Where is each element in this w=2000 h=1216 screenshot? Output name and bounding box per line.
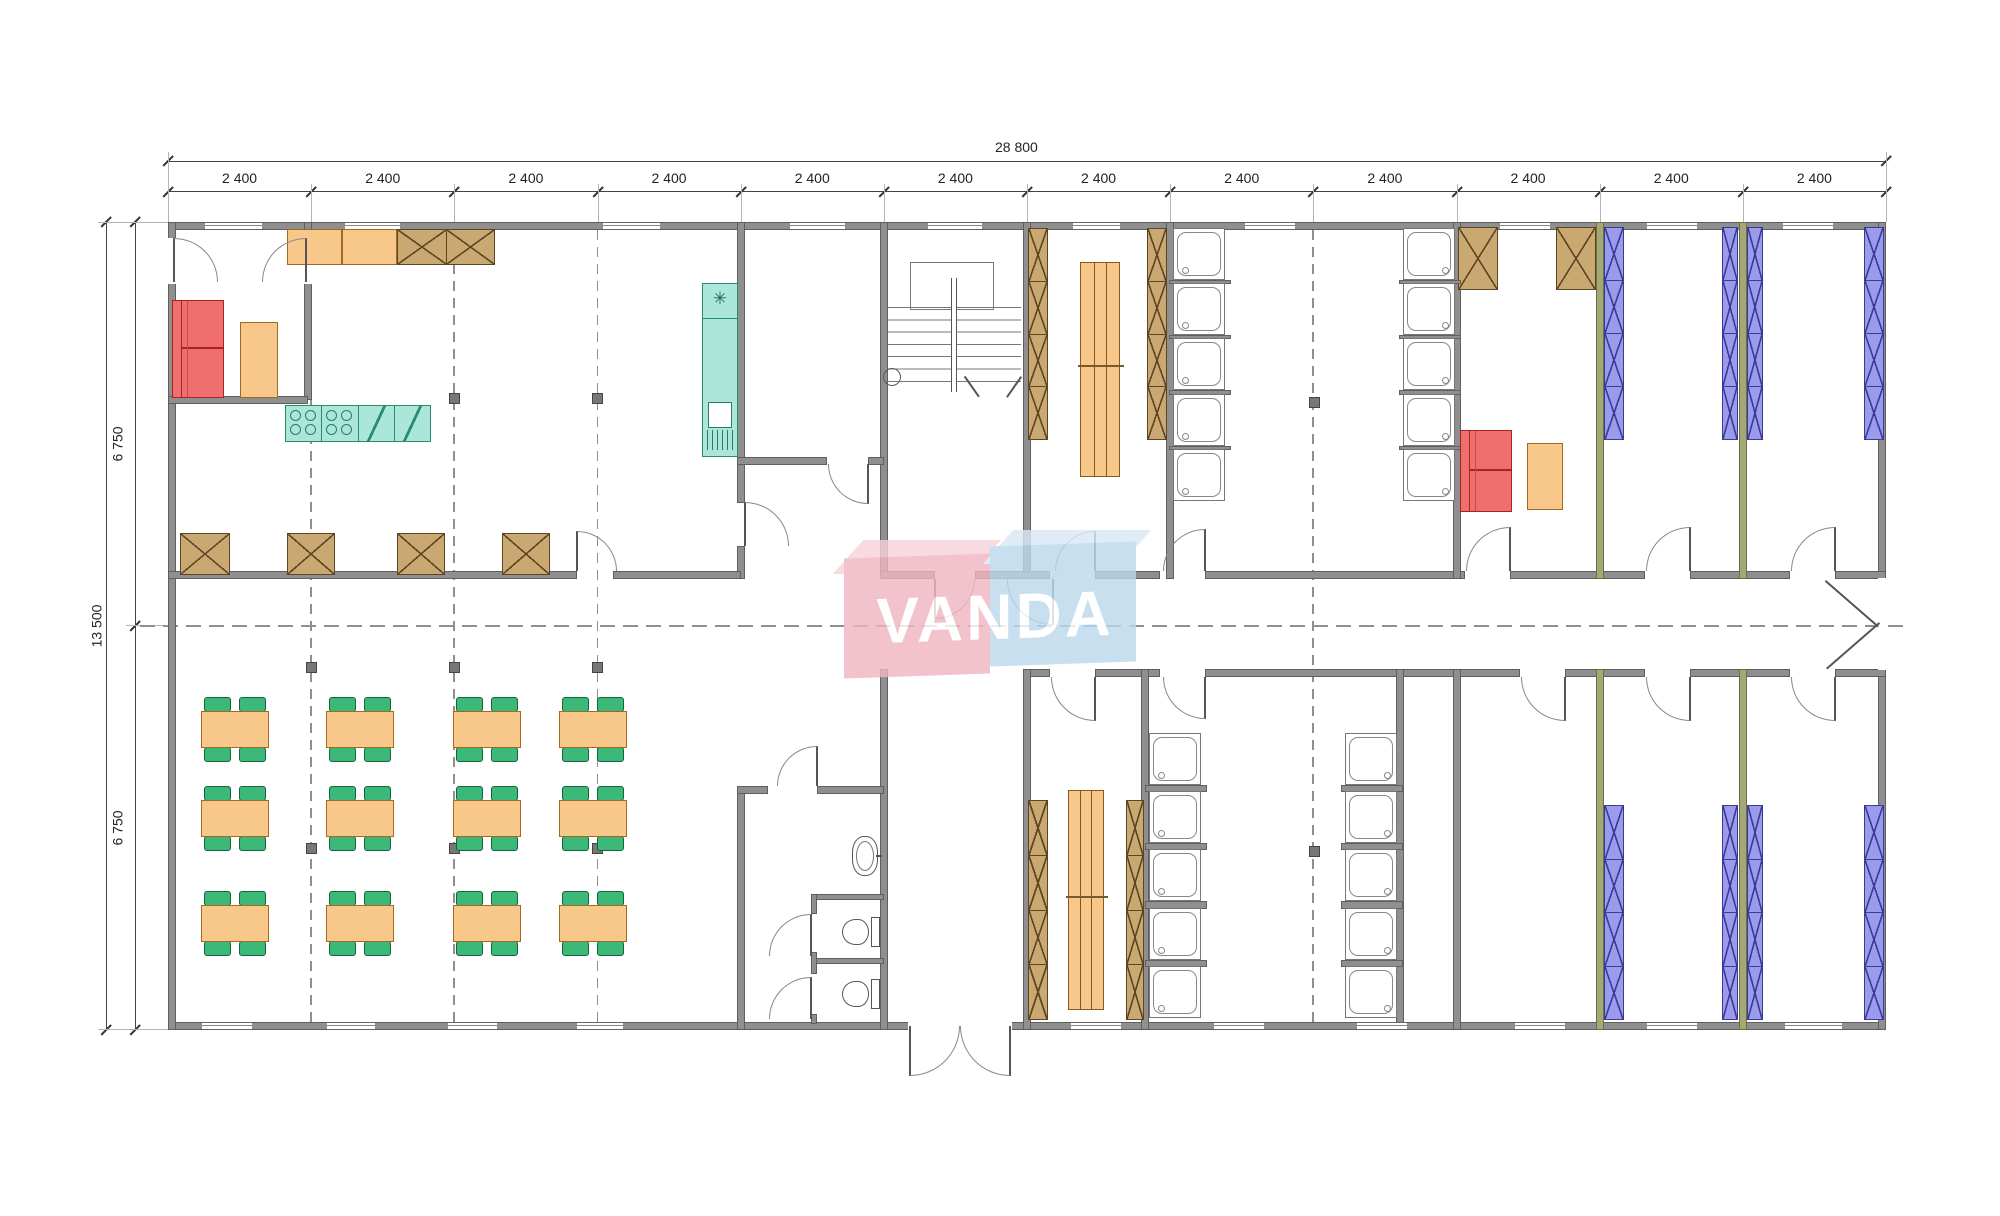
dim-extension-line [1600, 184, 1601, 222]
window [1785, 1022, 1842, 1030]
chair [364, 697, 391, 712]
shower-drain [1158, 1005, 1165, 1012]
stair-stringer [951, 278, 957, 392]
washbasin-tap [876, 855, 882, 857]
dining-table [326, 800, 394, 837]
bunk-bed-section [1723, 806, 1737, 859]
chair [562, 786, 589, 801]
door-swing-arc [828, 464, 868, 504]
dining-table [326, 711, 394, 748]
locker-column-section [1029, 855, 1047, 910]
kitchen-x-cabinet-section [398, 230, 446, 264]
bunk-bed-section [1865, 912, 1883, 966]
bunk-bed-column [1604, 227, 1624, 440]
dimension-bay-label: 2 400 [1600, 170, 1743, 186]
shower-stall [1403, 228, 1455, 280]
wall [811, 952, 817, 974]
chair [597, 891, 624, 906]
dim-extension-line [98, 1029, 168, 1030]
locker-column-section [1148, 334, 1166, 387]
shower-drain [1384, 1005, 1391, 1012]
kitchen-island [285, 405, 431, 442]
dining-table [453, 905, 521, 942]
corridor-exit-door-leaf [1826, 622, 1880, 669]
column-marker [592, 662, 603, 673]
dimension-bay-label: 2 400 [168, 170, 311, 186]
door-swing-arc [769, 914, 811, 956]
shower-drain [1182, 433, 1189, 440]
chair [239, 891, 266, 906]
wall [1739, 222, 1747, 579]
locker-cabinet [1458, 227, 1498, 290]
wall [811, 894, 817, 914]
chair [456, 747, 483, 762]
chair [491, 747, 518, 762]
cooktop-burner [341, 410, 352, 421]
bench-plank-line [1094, 263, 1095, 476]
chair [456, 941, 483, 956]
floor-plan-canvas: 28 800 13 500 6 750 6 750 VANDA 2 4002 4… [0, 0, 2000, 1216]
chair [239, 836, 266, 851]
locker-column-section [1029, 334, 1047, 387]
dim-extension-line [1886, 152, 1887, 222]
chair [204, 786, 231, 801]
locker-column-section [1029, 281, 1047, 334]
window [577, 1022, 623, 1030]
shower-stall [1173, 338, 1225, 390]
window [1245, 222, 1295, 230]
wall [880, 669, 888, 1030]
chair [329, 697, 356, 712]
dimension-overall-height: 13 500 [88, 605, 104, 648]
bench-plank-line [1106, 263, 1107, 476]
shower-drain [1442, 488, 1449, 495]
chair [239, 786, 266, 801]
bunk-bed-section [1605, 912, 1623, 966]
chair [456, 891, 483, 906]
door-swing-arc [769, 977, 811, 1019]
sink-basin [708, 402, 732, 428]
bunk-bed-section [1723, 280, 1737, 333]
door-swing-arc [1646, 527, 1690, 571]
chair [491, 697, 518, 712]
chair [364, 836, 391, 851]
kitchen-wall-cabinet-divider [341, 229, 343, 265]
wall [1565, 669, 1645, 677]
column-marker [306, 843, 317, 854]
dim-extension-line [1313, 184, 1314, 222]
chair [329, 891, 356, 906]
bunk-bed-section [1748, 280, 1762, 333]
wall [1205, 669, 1520, 677]
bunk-bed-section [1865, 333, 1883, 386]
chair [562, 941, 589, 956]
toilet [842, 915, 880, 949]
kitchen-island-cooktop [321, 406, 357, 441]
locker-cabinet-section [1557, 228, 1595, 289]
chair [364, 941, 391, 956]
shower-stall [1403, 449, 1455, 501]
dim-extension-line [98, 222, 168, 223]
chair [204, 747, 231, 762]
sofa-inner-line [187, 301, 188, 397]
bunk-bed-section [1865, 859, 1883, 913]
column-marker [449, 393, 460, 404]
bunk-bed-column [1864, 227, 1884, 440]
wardrobe-x [503, 534, 549, 574]
dining-table [201, 905, 269, 942]
chair [491, 836, 518, 851]
wall [1596, 669, 1604, 1030]
shower-drain [1182, 267, 1189, 274]
kitchen-tall-unit: ✳ [702, 283, 738, 457]
bunk-bed-section [1748, 966, 1762, 1020]
dim-extension-line [1170, 184, 1171, 222]
bunk-bed-section [1723, 228, 1737, 280]
shower-stall [1149, 733, 1201, 785]
bunk-bed-section [1748, 806, 1762, 859]
dimension-bay-label: 2 400 [1027, 170, 1170, 186]
bench-crossbar [1066, 896, 1108, 898]
bunk-bed-column [1604, 805, 1624, 1020]
toilet-tank [871, 979, 880, 1009]
locker-column-section [1127, 801, 1143, 855]
dining-table [559, 905, 627, 942]
chair [364, 747, 391, 762]
chair [456, 697, 483, 712]
sink-diagonal [359, 406, 394, 441]
shower-stall [1149, 966, 1201, 1018]
sofa [1460, 430, 1512, 512]
bench [1080, 262, 1120, 477]
shower-stall [1149, 908, 1201, 960]
dim-extension-line [598, 184, 599, 222]
bunk-bed-section [1748, 859, 1762, 913]
window [603, 222, 660, 230]
sofa [172, 300, 224, 398]
dim-line-overall-width [168, 161, 1886, 162]
door-swing-arc [1646, 677, 1690, 721]
dim-extension-line [454, 184, 455, 222]
locker-cabinet [1556, 227, 1596, 290]
dimension-overall-width: 28 800 [995, 139, 1038, 155]
bunk-bed-section [1605, 966, 1623, 1020]
dining-table [326, 905, 394, 942]
window [1647, 222, 1697, 230]
chair [329, 786, 356, 801]
shower-stall [1149, 791, 1201, 843]
chair [364, 786, 391, 801]
cooktop-burner [341, 424, 352, 435]
bunk-bed-section [1723, 966, 1737, 1020]
bunk-bed-section [1605, 386, 1623, 439]
window [1500, 222, 1550, 230]
locker-column-section [1148, 229, 1166, 281]
dimension-bay-label: 2 400 [311, 170, 454, 186]
sofa-backrest [1461, 431, 1470, 511]
shower-stall [1173, 283, 1225, 335]
wardrobe-cabinet [180, 533, 230, 575]
wardrobe-cabinet [502, 533, 550, 575]
locker-column-section [1127, 964, 1143, 1019]
dim-extension-line [168, 152, 169, 222]
dimension-bay-label: 2 400 [884, 170, 1027, 186]
kitchen-island-sink [394, 406, 430, 441]
column-marker [1309, 397, 1320, 408]
kitchen-x-cabinet-section [446, 230, 495, 264]
bunk-bed-column [1722, 805, 1738, 1020]
wall [1205, 571, 1465, 579]
shower-stall [1345, 791, 1397, 843]
wall [1453, 669, 1461, 1030]
door-swing-arc [1466, 527, 1510, 571]
shower-stall [1345, 966, 1397, 1018]
fridge-section: ✳ [703, 284, 737, 319]
wall [811, 958, 884, 964]
window [1073, 222, 1120, 230]
locker-column-section [1029, 386, 1047, 439]
dimension-left-lower: 6 750 [110, 810, 126, 845]
chair [597, 786, 624, 801]
shower-stall [1345, 733, 1397, 785]
dimension-bay-label: 2 400 [1743, 170, 1886, 186]
cooktop-burner [305, 410, 316, 421]
chair [597, 836, 624, 851]
bunk-bed-section [1723, 859, 1737, 913]
shower-stall [1149, 849, 1201, 901]
shower-drain [1442, 433, 1449, 440]
chair [329, 836, 356, 851]
bunk-bed-section [1865, 966, 1883, 1020]
stair-start-circle [883, 368, 901, 386]
window [205, 222, 262, 230]
toilet-bowl [842, 919, 869, 945]
wall [868, 457, 884, 465]
sofa-cushion-divider [182, 347, 223, 349]
dining-table [559, 711, 627, 748]
kitchen-x-cabinet [397, 229, 495, 265]
window [327, 1022, 375, 1030]
door-swing-arc [960, 1026, 1010, 1076]
chair [204, 836, 231, 851]
wardrobe-x [288, 534, 334, 574]
wardrobe-x [181, 534, 229, 574]
cooktop-burner [326, 424, 337, 435]
cooktop-burner [305, 424, 316, 435]
door-swing-arc [1163, 677, 1205, 719]
door-swing-arc [777, 746, 817, 786]
wall [1835, 669, 1886, 677]
window [1783, 222, 1833, 230]
shower-stall [1345, 908, 1397, 960]
shower-drain [1442, 267, 1449, 274]
cooktop-burner [326, 410, 337, 421]
dimension-bay-label: 2 400 [1457, 170, 1600, 186]
dim-extension-line [884, 184, 885, 222]
sofa-cushion-divider [1470, 469, 1511, 471]
dimension-bay-label: 2 400 [1170, 170, 1313, 186]
washbasin [852, 836, 881, 878]
sofa-backrest [173, 301, 182, 397]
wall [811, 894, 884, 900]
washbasin-inner [856, 841, 874, 871]
chair [204, 697, 231, 712]
bench-crossbar [1078, 365, 1124, 367]
locker-column-section [1148, 386, 1166, 439]
dim-extension-line [1457, 184, 1458, 222]
chair [329, 747, 356, 762]
wall [737, 786, 745, 1030]
chair [491, 786, 518, 801]
chair [562, 836, 589, 851]
wardrobe-cabinet [287, 533, 335, 575]
dimension-left-upper: 6 750 [110, 426, 126, 461]
dimension-bay-label: 2 400 [598, 170, 741, 186]
shower-drain [1384, 772, 1391, 779]
dim-extension-line [741, 184, 742, 222]
shower-stall [1173, 394, 1225, 446]
bunk-bed-column [1864, 805, 1884, 1020]
dimension-bay-label: 2 400 [1313, 170, 1456, 186]
column-marker [1309, 846, 1320, 857]
bunk-bed-section [1605, 333, 1623, 386]
locker-column-section [1029, 964, 1047, 1019]
window [790, 222, 845, 230]
wardrobe-x [398, 534, 444, 574]
chair [562, 747, 589, 762]
column-marker [306, 662, 317, 673]
window [1515, 1022, 1565, 1030]
door-swing-arc [1521, 677, 1565, 721]
door-swing-arc [1791, 677, 1835, 721]
chair [562, 697, 589, 712]
locker-column [1028, 228, 1048, 440]
bench [1068, 790, 1104, 1010]
shower-stall [1173, 449, 1225, 501]
bunk-bed-section [1723, 912, 1737, 966]
wall [1739, 669, 1747, 1030]
dining-table [201, 800, 269, 837]
locker-cabinet-section [1459, 228, 1497, 289]
shower-stall [1403, 338, 1455, 390]
bunk-bed-section [1605, 280, 1623, 333]
bunk-bed-section [1723, 333, 1737, 386]
wall [613, 571, 741, 579]
chair [491, 941, 518, 956]
dim-extension-line [1743, 184, 1744, 222]
bunk-bed-section [1723, 386, 1737, 439]
locker-column-section [1029, 801, 1047, 855]
bunk-bed-section [1748, 333, 1762, 386]
side-table [240, 322, 278, 398]
watermark: VANDA [830, 528, 1150, 688]
window [1214, 1022, 1264, 1030]
sink-diagonal [395, 406, 430, 441]
chair [239, 747, 266, 762]
chair [456, 836, 483, 851]
dim-extension-line [1027, 184, 1028, 222]
wall [1596, 222, 1604, 579]
kitchen-island-cooktop [286, 406, 321, 441]
bunk-bed-section [1748, 386, 1762, 439]
toilet-tank [871, 917, 880, 947]
shower-stall [1173, 228, 1225, 280]
bunk-bed-section [1605, 806, 1623, 859]
dimension-bay-label: 2 400 [454, 170, 597, 186]
bench-plank-line [1080, 791, 1081, 1009]
chair [597, 697, 624, 712]
bunk-bed-section [1865, 280, 1883, 333]
window [1357, 1022, 1407, 1030]
wall [737, 457, 827, 465]
wardrobe-cabinet [397, 533, 445, 575]
shower-drain [1384, 947, 1391, 954]
cooktop-burner [290, 424, 301, 435]
chair [364, 891, 391, 906]
dimension-bay-label: 2 400 [741, 170, 884, 186]
dining-table [453, 711, 521, 748]
side-table [1527, 443, 1563, 510]
door-swing-arc [745, 502, 789, 546]
dim-line-overall-height [106, 222, 107, 1030]
locker-column-section [1127, 910, 1143, 965]
wall [817, 786, 884, 794]
chair [239, 697, 266, 712]
bunk-bed-section [1865, 386, 1883, 439]
window [1071, 1022, 1121, 1030]
corridor-exit-door-leaf [1825, 580, 1879, 627]
bunk-bed-column [1747, 227, 1763, 440]
shower-stall [1403, 283, 1455, 335]
cooktop-burner [290, 410, 301, 421]
chair [204, 891, 231, 906]
chair [456, 786, 483, 801]
window [928, 222, 982, 230]
locker-column-section [1127, 855, 1143, 910]
locker-column-section [1148, 281, 1166, 334]
door-swing-arc [577, 531, 617, 571]
door-opening [1878, 578, 1886, 670]
bunk-bed-section [1605, 228, 1623, 280]
locker-column-section [1029, 229, 1047, 281]
bunk-bed-section [1865, 806, 1883, 859]
door-swing-arc [262, 238, 306, 282]
door-swing-arc [910, 1026, 960, 1076]
shower-stall [1403, 394, 1455, 446]
bench-plank-line [1091, 791, 1092, 1009]
bunk-bed-section [1605, 859, 1623, 913]
window [202, 1022, 252, 1030]
bunk-bed-section [1865, 228, 1883, 280]
shower-drain [1158, 772, 1165, 779]
bunk-bed-section [1748, 912, 1762, 966]
dim-extension-line [311, 184, 312, 222]
shower-drain [1158, 947, 1165, 954]
column-marker [449, 662, 460, 673]
toilet-bowl [842, 981, 869, 1007]
wall [811, 1014, 817, 1024]
toilet [842, 977, 880, 1011]
dining-table [453, 800, 521, 837]
chair [329, 941, 356, 956]
door-swing-arc [174, 238, 218, 282]
locker-column [1028, 800, 1048, 1020]
chair [597, 941, 624, 956]
kitchen-island-sink [358, 406, 394, 441]
shower-drain [1182, 488, 1189, 495]
chair [597, 747, 624, 762]
sofa-inner-line [1475, 431, 1476, 511]
